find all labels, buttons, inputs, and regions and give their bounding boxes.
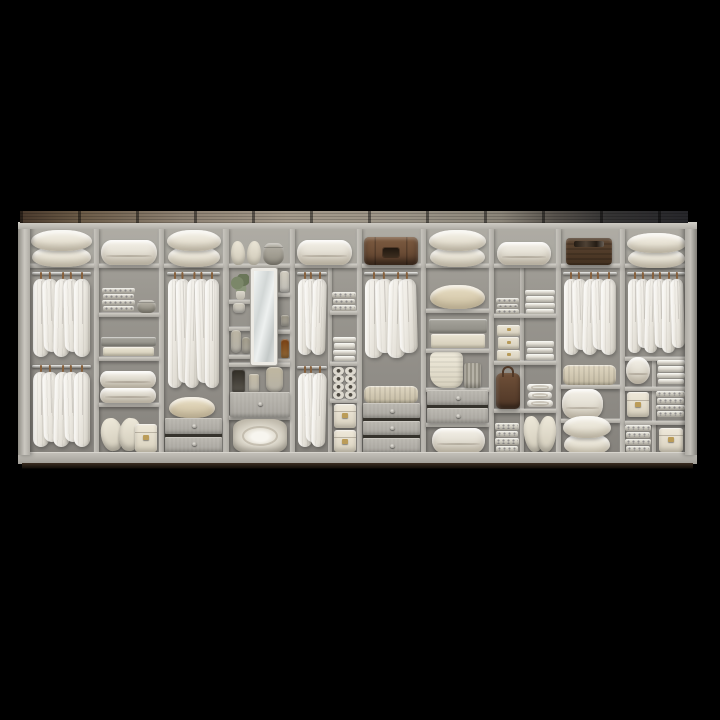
drawer-knob bbox=[390, 409, 395, 413]
drawer-face bbox=[165, 418, 222, 434]
shelf bbox=[277, 330, 290, 334]
item-pillow-stack bbox=[563, 419, 611, 453]
shelf bbox=[426, 423, 489, 427]
shelf bbox=[99, 313, 159, 317]
deco-body bbox=[281, 315, 289, 326]
drawer-knob bbox=[390, 426, 395, 430]
drawer-face bbox=[363, 438, 420, 453]
item-ribbed-bin bbox=[464, 363, 481, 388]
drawer-knob bbox=[192, 424, 197, 428]
folded-layer bbox=[496, 298, 519, 303]
item-drawers bbox=[165, 418, 222, 452]
folded-layer bbox=[526, 296, 554, 301]
rolled-item bbox=[333, 391, 344, 399]
drawer-face bbox=[230, 392, 290, 417]
throw-body bbox=[430, 352, 463, 388]
deco-body bbox=[280, 271, 289, 292]
folded-layer bbox=[495, 423, 519, 430]
item-round-bin bbox=[137, 300, 156, 313]
item-draped-throw bbox=[430, 352, 463, 388]
folded-layer bbox=[103, 294, 134, 299]
item-vase bbox=[231, 330, 241, 353]
vertical-divider bbox=[357, 229, 362, 453]
vertical-divider bbox=[159, 229, 164, 453]
hanging-rod bbox=[364, 272, 418, 275]
item-folded-duvet bbox=[101, 240, 157, 265]
drawer-knob bbox=[456, 396, 461, 400]
folded-layer bbox=[497, 304, 518, 309]
hanging-shirt bbox=[74, 279, 90, 357]
rolled-item bbox=[345, 367, 356, 375]
box-body bbox=[627, 392, 649, 417]
hanging-shirt bbox=[205, 279, 219, 388]
item-ceramic-pot bbox=[233, 303, 245, 313]
item-folded-towels bbox=[495, 422, 519, 452]
item-rolled-duvet bbox=[233, 419, 287, 453]
folded-duvet-body bbox=[101, 240, 157, 265]
folded-layer bbox=[333, 337, 356, 342]
item-cosmetic-jar bbox=[281, 315, 289, 326]
item-knit-blanket bbox=[563, 364, 616, 385]
item-drawers bbox=[427, 390, 488, 423]
item-storage-box bbox=[627, 392, 649, 417]
item-cushion-pair bbox=[231, 241, 261, 265]
folded-layer bbox=[431, 334, 485, 348]
folded-layer bbox=[526, 354, 554, 360]
folded-duvet-body bbox=[100, 371, 156, 388]
vertical-divider bbox=[94, 229, 99, 453]
folded-layer bbox=[525, 290, 555, 295]
item-folded-blankets bbox=[429, 318, 487, 348]
item-vintage-leather-case bbox=[566, 238, 612, 265]
folded-layer bbox=[334, 343, 355, 348]
drawer-knob bbox=[258, 402, 263, 406]
folded-layer bbox=[657, 360, 685, 365]
item-leather-suitcase bbox=[364, 237, 418, 265]
item-folded-towels bbox=[333, 336, 356, 361]
drawer-knob bbox=[390, 444, 395, 448]
hanging-shirt bbox=[311, 373, 327, 447]
box-body bbox=[334, 404, 356, 428]
folded-layer bbox=[496, 431, 518, 438]
item-folded-duvet bbox=[100, 371, 156, 388]
hanging-shirt bbox=[398, 279, 418, 353]
shelf bbox=[330, 311, 357, 315]
folded-layer bbox=[332, 292, 356, 298]
shelf bbox=[494, 361, 556, 365]
item-rolled-accessories bbox=[333, 367, 356, 399]
item-folded-sheets bbox=[526, 340, 554, 360]
drawer-face bbox=[165, 437, 222, 453]
drawer-knob bbox=[456, 414, 461, 418]
left-side-panel bbox=[18, 222, 30, 455]
pillow bbox=[563, 416, 611, 438]
item-leather-bag bbox=[496, 373, 520, 409]
item-vanity-drawer bbox=[230, 392, 290, 417]
rolled-duvet-body bbox=[233, 419, 287, 453]
folded-layer bbox=[657, 411, 684, 417]
item-pillow bbox=[430, 285, 485, 309]
rolled-item bbox=[333, 367, 344, 375]
rolled-item bbox=[333, 383, 344, 391]
folded-layer bbox=[101, 337, 156, 346]
item-folded-blankets bbox=[101, 336, 156, 356]
pillow bbox=[169, 397, 215, 418]
hanging-rod bbox=[297, 366, 327, 369]
item-leaning-pillows bbox=[524, 412, 556, 453]
hanging-shirt bbox=[311, 279, 327, 355]
item-hanging-shirts bbox=[296, 272, 328, 359]
folded-layer bbox=[656, 391, 685, 397]
folded-layer bbox=[657, 398, 684, 404]
item-amber-bottle bbox=[281, 339, 289, 358]
folded-duvet-body bbox=[100, 388, 156, 403]
folded-layer bbox=[656, 405, 685, 411]
rolled-item bbox=[345, 375, 356, 383]
item-hanging-shirts bbox=[562, 272, 618, 359]
box-body bbox=[659, 428, 683, 452]
folded-layer bbox=[527, 348, 553, 354]
basket-body bbox=[263, 243, 284, 265]
folded-layer bbox=[658, 366, 684, 371]
drawer-knob bbox=[192, 442, 197, 446]
folded-duvet-body bbox=[497, 242, 551, 265]
item-storage-box bbox=[659, 428, 683, 452]
item-hanging-shirts bbox=[296, 366, 328, 451]
item-storage-boxes bbox=[497, 324, 520, 361]
leaning-pillow bbox=[536, 415, 558, 453]
item-pump-bottles bbox=[232, 369, 245, 392]
item-drawers bbox=[363, 403, 420, 453]
item-storage-boxes bbox=[334, 404, 356, 452]
item-pillow-stack bbox=[429, 233, 486, 265]
item-folded-towels bbox=[496, 297, 519, 314]
folded-layer bbox=[528, 392, 552, 399]
item-vase bbox=[242, 337, 250, 353]
drawer-face bbox=[427, 390, 488, 405]
shelf bbox=[277, 293, 290, 297]
drawer-face bbox=[427, 408, 488, 423]
folded-layer bbox=[497, 325, 520, 336]
folded-layer bbox=[332, 305, 356, 311]
item-dressing-mirror bbox=[251, 268, 277, 365]
shelf bbox=[229, 355, 251, 359]
folded-duvet-body bbox=[562, 389, 603, 419]
folded-layer bbox=[526, 341, 554, 347]
item-folded-towels bbox=[656, 390, 685, 417]
folded-layer bbox=[496, 309, 519, 314]
vertical-divider bbox=[620, 229, 625, 453]
item-spray-bottle bbox=[280, 271, 289, 292]
item-folded-towels bbox=[332, 291, 356, 311]
cushion bbox=[246, 241, 262, 266]
folded-layer bbox=[102, 300, 135, 305]
vertical-divider bbox=[489, 229, 494, 453]
deco-body bbox=[249, 374, 259, 392]
folded-layer bbox=[563, 365, 616, 385]
folded-layer bbox=[527, 400, 553, 407]
hanging-shirt bbox=[74, 372, 90, 447]
top-rail bbox=[18, 222, 697, 229]
floor-shadow bbox=[22, 463, 693, 469]
box-body bbox=[135, 424, 157, 452]
folded-duvet-body bbox=[626, 357, 650, 384]
hanging-shirt bbox=[670, 279, 685, 348]
folded-layer bbox=[525, 303, 555, 308]
basket-body bbox=[137, 300, 156, 313]
rolled-item bbox=[345, 391, 356, 399]
item-hanging-shirts bbox=[166, 272, 221, 392]
item-storage-box bbox=[135, 424, 157, 452]
pillow bbox=[429, 230, 486, 251]
item-rolled-duvet bbox=[626, 357, 650, 384]
pillow bbox=[430, 285, 485, 309]
item-folded-towels bbox=[525, 289, 555, 314]
shelf bbox=[330, 362, 357, 366]
plant-body bbox=[231, 274, 249, 300]
pillow bbox=[627, 233, 686, 253]
item-woven-vase bbox=[266, 367, 283, 392]
deco-body bbox=[231, 330, 241, 353]
case-body bbox=[566, 238, 612, 265]
item-pillow-stack bbox=[627, 236, 686, 266]
folded-layer bbox=[103, 306, 134, 311]
folded-layer bbox=[526, 309, 554, 314]
item-knit-blanket bbox=[364, 385, 418, 403]
folded-duvet-body bbox=[297, 240, 352, 265]
folded-layer bbox=[626, 432, 650, 438]
shelf bbox=[330, 399, 357, 403]
drawer-face bbox=[363, 421, 420, 436]
deco-body bbox=[233, 303, 245, 313]
product-photo-stage bbox=[0, 0, 720, 720]
item-folded-towels bbox=[657, 359, 685, 384]
folded-layer bbox=[527, 384, 553, 391]
rolled-item bbox=[333, 375, 344, 383]
deco-body bbox=[266, 367, 283, 392]
item-folded-duvet bbox=[497, 242, 551, 265]
box-body bbox=[334, 430, 356, 452]
mirror-glass bbox=[251, 268, 277, 365]
vertical-divider bbox=[421, 229, 426, 453]
item-round-basket bbox=[263, 243, 284, 265]
item-folded-duvet bbox=[100, 388, 156, 403]
hanging-rod bbox=[297, 272, 327, 275]
item-candle bbox=[249, 374, 259, 392]
item-pillow-stack bbox=[167, 233, 221, 265]
shelf bbox=[99, 403, 159, 407]
item-rolled-towels bbox=[527, 383, 553, 407]
folded-layer bbox=[625, 439, 651, 445]
deco-body bbox=[242, 337, 250, 353]
folded-layer bbox=[658, 379, 684, 384]
folded-layer bbox=[102, 288, 135, 293]
item-pillow-stack bbox=[31, 233, 92, 265]
item-folded-towels bbox=[102, 287, 135, 311]
folded-layer bbox=[657, 373, 685, 378]
item-hanging-shirts bbox=[31, 365, 92, 451]
item-folded-duvet bbox=[297, 240, 352, 265]
item-accent-pillow bbox=[169, 397, 215, 418]
folded-layer bbox=[498, 337, 519, 348]
pillow bbox=[167, 230, 221, 251]
cushion bbox=[230, 241, 246, 266]
rolled-item bbox=[345, 383, 356, 391]
folded-layer bbox=[497, 350, 520, 361]
shelf bbox=[494, 314, 556, 318]
folded-layer bbox=[495, 438, 519, 445]
suitcase-body bbox=[364, 237, 418, 265]
item-hanging-shirts bbox=[31, 272, 92, 361]
folded-layer bbox=[334, 356, 355, 361]
shelf bbox=[426, 309, 489, 313]
bin-body bbox=[464, 363, 481, 388]
folded-layer bbox=[625, 425, 651, 431]
folded-layer bbox=[429, 319, 487, 333]
item-folded-duvet bbox=[432, 428, 485, 453]
folded-layer bbox=[364, 386, 418, 403]
item-potted-plant bbox=[231, 274, 249, 300]
pillow bbox=[31, 230, 92, 251]
hanging-shirt bbox=[601, 279, 616, 355]
folded-duvet-body bbox=[432, 428, 485, 453]
deco-body bbox=[232, 369, 245, 392]
item-hanging-shirts bbox=[363, 272, 419, 362]
top-wood-beam bbox=[20, 211, 688, 223]
right-side-panel bbox=[685, 222, 697, 455]
shelf bbox=[99, 357, 159, 361]
folded-layer bbox=[103, 347, 154, 356]
item-folded-duvet bbox=[562, 389, 603, 419]
deco-body bbox=[281, 339, 289, 358]
bag-body bbox=[496, 373, 520, 409]
folded-layer bbox=[333, 350, 356, 355]
item-hanging-shirts bbox=[626, 272, 686, 357]
folded-layer bbox=[333, 299, 355, 305]
vertical-divider bbox=[290, 229, 295, 453]
item-folded-towels bbox=[625, 424, 651, 452]
drawer-face bbox=[363, 403, 420, 418]
